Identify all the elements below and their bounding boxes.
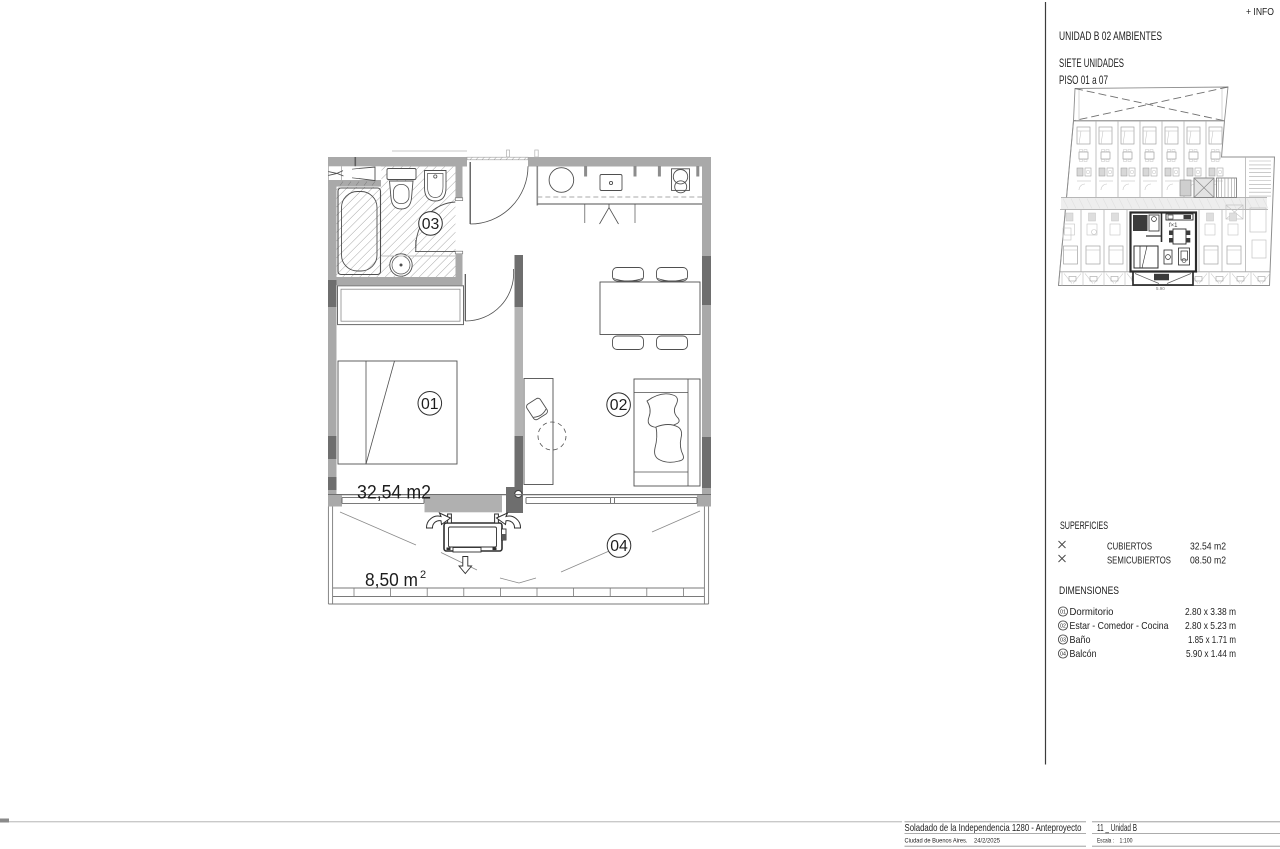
svg-text:Soladado de la Independencia 1: Soladado de la Independencia 1280 - Ante… [905, 823, 1082, 834]
svg-text:2.80 x 3.38 m: 2.80 x 3.38 m [1185, 606, 1236, 618]
svg-text:32,54 m2: 32,54 m2 [357, 482, 431, 504]
svg-text:01: 01 [1060, 609, 1066, 615]
svg-text:Balcón: Balcón [1070, 648, 1097, 660]
svg-text:03: 03 [422, 216, 440, 233]
svg-text:2.80 x 5.23 m: 2.80 x 5.23 m [1185, 620, 1236, 632]
svg-text:Baño: Baño [1070, 634, 1091, 646]
svg-text:SUPERFICIES: SUPERFICIES [1060, 520, 1108, 532]
svg-text:+ INFO: + INFO [1246, 6, 1274, 18]
svg-text:f×1: f×1 [1169, 223, 1178, 229]
svg-text:Dormitorio: Dormitorio [1070, 606, 1114, 618]
svg-text:PISO 01 a 07: PISO 01 a 07 [1059, 73, 1108, 87]
svg-text:11 _ Unidad B: 11 _ Unidad B [1097, 823, 1137, 834]
svg-text:02: 02 [1060, 623, 1066, 629]
svg-text:DIMENSIONES: DIMENSIONES [1059, 585, 1119, 597]
svg-text:5.90: 5.90 [1156, 286, 1165, 291]
svg-text:Ciudad de Buenos Aires.: Ciudad de Buenos Aires. [905, 837, 968, 844]
svg-text:Estar - Comedor - Cocina: Estar - Comedor - Cocina [1070, 620, 1169, 632]
svg-text:08.50 m2: 08.50 m2 [1190, 555, 1226, 567]
svg-text:02: 02 [610, 397, 628, 414]
svg-text:2: 2 [420, 569, 426, 581]
svg-text:SIETE UNIDADES: SIETE UNIDADES [1059, 56, 1124, 70]
svg-text:CUBIERTOS: CUBIERTOS [1107, 541, 1152, 553]
svg-text:1.85 x 1.71 m: 1.85 x 1.71 m [1188, 634, 1236, 646]
svg-text:32.54 m2: 32.54 m2 [1190, 541, 1226, 553]
svg-text:5.90 x 1.44 m: 5.90 x 1.44 m [1186, 648, 1236, 660]
svg-text:04: 04 [610, 538, 628, 555]
svg-text:01: 01 [421, 396, 439, 413]
svg-text:8,50 m: 8,50 m [365, 570, 418, 590]
svg-text:SEMICUBIERTOS: SEMICUBIERTOS [1107, 555, 1171, 567]
svg-text:24/2/2025: 24/2/2025 [974, 837, 1000, 844]
svg-text:04: 04 [1060, 651, 1066, 657]
svg-text:1:100: 1:100 [1120, 837, 1133, 844]
svg-text:03: 03 [1060, 637, 1066, 643]
svg-text:Escala :: Escala : [1097, 837, 1114, 844]
svg-text:UNIDAD B 02 AMBIENTES: UNIDAD B 02 AMBIENTES [1059, 29, 1162, 43]
